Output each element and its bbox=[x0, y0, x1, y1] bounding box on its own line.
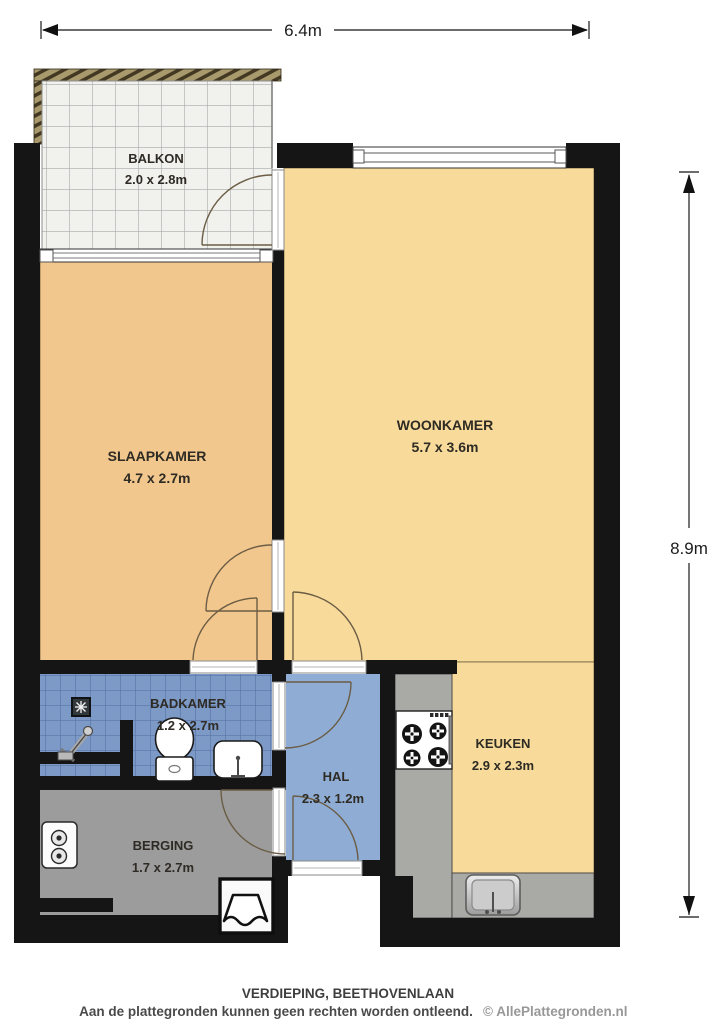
balcony-railing bbox=[34, 81, 42, 144]
washing-machine-icon bbox=[220, 879, 273, 933]
keuken-size: 2.9 x 2.3m bbox=[472, 758, 534, 773]
dimension-arrow-icon bbox=[42, 24, 58, 36]
shower-drain-icon bbox=[72, 698, 90, 716]
width-dimension-label: 6.4m bbox=[284, 21, 322, 40]
berging-label: BERGING bbox=[133, 838, 194, 853]
footer-copyright: © AllePlattegronden.nl bbox=[483, 1004, 627, 1019]
footer-title: VERDIEPING, BEETHOVENLAAN bbox=[242, 986, 454, 1001]
dimension-arrow-icon bbox=[683, 174, 695, 193]
window bbox=[353, 147, 566, 168]
boiler-icon bbox=[42, 822, 77, 868]
dimension-arrow-icon bbox=[572, 24, 588, 36]
window bbox=[40, 249, 273, 262]
woonkamer-label: WOONKAMER bbox=[397, 417, 493, 433]
hal-label: HAL bbox=[323, 769, 350, 784]
woonkamer-size: 5.7 x 3.6m bbox=[412, 439, 479, 455]
slaapkamer-label: SLAAPKAMER bbox=[108, 448, 207, 464]
stove-icon bbox=[396, 711, 452, 769]
floor-plan: 6.4m 8.9m bbox=[0, 0, 726, 1024]
floorplan-page: 6.4m 8.9m bbox=[0, 0, 726, 1024]
balkon-label: BALKON bbox=[128, 151, 184, 166]
washbasin-icon bbox=[214, 741, 262, 778]
slaapkamer-size: 4.7 x 2.7m bbox=[124, 470, 191, 486]
berging-size: 1.7 x 2.7m bbox=[132, 860, 194, 875]
balcony-railing bbox=[34, 69, 281, 81]
badkamer-size: 1.2 x 2.7m bbox=[157, 718, 219, 733]
dimension-arrow-icon bbox=[683, 896, 695, 915]
hal-size: 2.3 x 1.2m bbox=[302, 791, 364, 806]
kitchen-sink-icon bbox=[466, 875, 520, 915]
height-dimension-label: 8.9m bbox=[670, 539, 708, 558]
keuken-label: KEUKEN bbox=[476, 736, 531, 751]
woonkamer-floor bbox=[284, 168, 594, 662]
hal-floor bbox=[286, 674, 380, 862]
badkamer-label: BADKAMER bbox=[150, 696, 226, 711]
footer-disclaimer: Aan de plattegronden kunnen geen rechten… bbox=[79, 1004, 473, 1019]
balkon-size: 2.0 x 2.8m bbox=[125, 172, 187, 187]
